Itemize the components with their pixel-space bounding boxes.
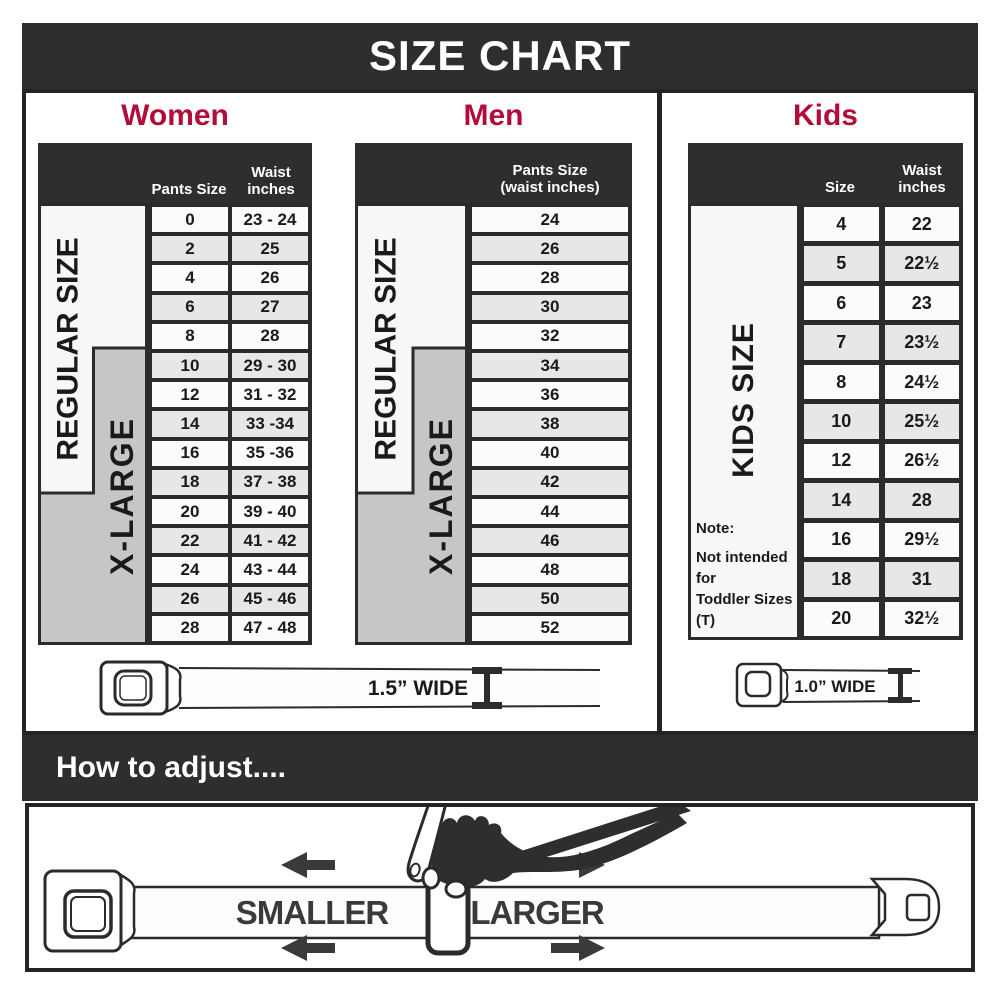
table-cell: 35 -36 [232, 441, 308, 466]
men-size-table: 242628303234363840424446485052 [468, 203, 632, 645]
table-cell: 2 [152, 236, 228, 261]
table-cell: 10 [804, 404, 879, 438]
table-cell: 26 [232, 265, 308, 290]
table-cell: 52 [472, 616, 628, 641]
table-cell: 38 [472, 411, 628, 436]
kids-col2-header: Waist inches [882, 162, 962, 196]
table-cell: 46 [472, 528, 628, 553]
table-cell: 4 [152, 265, 228, 290]
fingertip [423, 868, 439, 888]
table-cell: 18 [804, 562, 879, 596]
women-table-header: Pants Size Waist inches [38, 143, 312, 203]
table-cell: 29½ [885, 523, 960, 557]
women-size-table: 023 - 242254266278281029 - 301231 - 3214… [148, 203, 312, 645]
buckle-latch [121, 875, 134, 945]
how-to-adjust-band: How to adjust.... [22, 735, 978, 801]
table-cell: 42 [472, 470, 628, 495]
table-cell: 39 - 40 [232, 499, 308, 524]
table-cell: 26 [472, 236, 628, 261]
table-cell: 24½ [885, 365, 960, 399]
table-cell: 36 [472, 382, 628, 407]
kids-fit-panel: KIDS SIZE Note: Not intended for Toddler… [688, 203, 800, 640]
table-cell: 28 [152, 616, 228, 641]
men-heading: Men [355, 96, 632, 136]
kids-section-divider [657, 89, 662, 735]
table-cell: 22 [152, 528, 228, 553]
adult-belt-width-label: 1.5” WIDE [368, 677, 468, 700]
women-fit-panel: REGULAR SIZE X-LARGE [38, 203, 148, 645]
table-cell: 25½ [885, 404, 960, 438]
page-title: SIZE CHART [369, 32, 631, 80]
table-cell: 33 -34 [232, 411, 308, 436]
size-chart-infographic: SIZE CHART Women Men Kids Pants Size Wai… [0, 0, 1000, 1000]
table-cell: 5 [804, 246, 879, 280]
women-col1-header: Pants Size [148, 181, 230, 198]
table-cell: 37 - 38 [232, 470, 308, 495]
table-cell: 20 [152, 499, 228, 524]
table-cell: 7 [804, 325, 879, 359]
women-heading: Women [38, 96, 312, 136]
smaller-label: SMALLER [236, 894, 390, 931]
kids-heading: Kids [688, 96, 963, 136]
table-cell: 0 [152, 207, 228, 232]
table-cell: 26 [152, 587, 228, 612]
table-cell: 30 [472, 295, 628, 320]
table-cell: 22½ [885, 246, 960, 280]
table-cell: 10 [152, 353, 228, 378]
table-cell: 24 [152, 557, 228, 582]
table-cell: 8 [804, 365, 879, 399]
table-cell: 40 [472, 441, 628, 466]
how-to-adjust-heading: How to adjust.... [22, 751, 286, 785]
table-cell: 31 [885, 562, 960, 596]
table-cell: 20 [804, 602, 879, 636]
table-cell: 27 [232, 295, 308, 320]
fingertip [446, 881, 466, 897]
table-cell: 23 [885, 286, 960, 320]
table-cell: 26½ [885, 444, 960, 478]
table-cell: 41 - 42 [232, 528, 308, 553]
table-cell: 32 [472, 324, 628, 349]
table-cell: 50 [472, 587, 628, 612]
men-table-header: Pants Size (waist inches) [355, 143, 632, 203]
arrow-left-icon [281, 852, 335, 878]
title-banner: SIZE CHART [22, 23, 978, 89]
table-cell: 29 - 30 [232, 353, 308, 378]
table-cell: 32½ [885, 602, 960, 636]
table-cell: 47 - 48 [232, 616, 308, 641]
kids-table-header: Size Waist inches [688, 143, 963, 203]
table-cell: 48 [472, 557, 628, 582]
table-cell: 18 [152, 470, 228, 495]
table-cell: 14 [804, 483, 879, 517]
larger-label: LARGER [470, 894, 605, 931]
table-cell: 28 [232, 324, 308, 349]
table-cell: 31 - 32 [232, 382, 308, 407]
table-cell: 6 [804, 286, 879, 320]
table-cell: 14 [152, 411, 228, 436]
table-cell: 34 [472, 353, 628, 378]
adult-belt-illustration: 1.5” WIDE [95, 652, 610, 724]
adjust-illustration-box: SMALLER LARGER [25, 803, 975, 972]
table-cell: 4 [804, 207, 879, 241]
table-cell: 16 [152, 441, 228, 466]
table-cell: 22 [885, 207, 960, 241]
men-fit-panel: REGULAR SIZE X-LARGE [355, 203, 468, 645]
table-cell: 28 [885, 483, 960, 517]
table-cell: 25 [232, 236, 308, 261]
men-col-header: Pants Size (waist inches) [468, 162, 632, 196]
table-cell: 23 - 24 [232, 207, 308, 232]
table-cell: 44 [472, 499, 628, 524]
table-cell: 16 [804, 523, 879, 557]
table-cell: 24 [472, 207, 628, 232]
women-regular-label: REGULAR SIZE [52, 237, 85, 460]
kids-col1-header: Size [800, 179, 880, 196]
kids-belt-width-label: 1.0” WIDE [794, 677, 875, 696]
men-regular-label: REGULAR SIZE [370, 237, 403, 460]
adjust-belt-illustration: SMALLER LARGER [29, 807, 971, 968]
table-cell: 43 - 44 [232, 557, 308, 582]
table-cell: 28 [472, 265, 628, 290]
kids-size-label: KIDS SIZE [727, 322, 761, 478]
kids-belt-illustration: 1.0” WIDE [733, 658, 933, 713]
table-cell: 23½ [885, 325, 960, 359]
table-cell: 6 [152, 295, 228, 320]
kids-note: Note: Not intended for Toddler Sizes (T) [696, 518, 797, 631]
table-cell: 12 [804, 444, 879, 478]
women-col2-header: Waist inches [230, 164, 312, 198]
kids-size-table: 422522½623723½824½1025½1226½14281629½183… [800, 203, 963, 640]
women-xlarge-label: X-LARGE [104, 417, 140, 575]
table-cell: 12 [152, 382, 228, 407]
table-cell: 8 [152, 324, 228, 349]
table-cell: 45 - 46 [232, 587, 308, 612]
men-xlarge-label: X-LARGE [423, 417, 459, 575]
